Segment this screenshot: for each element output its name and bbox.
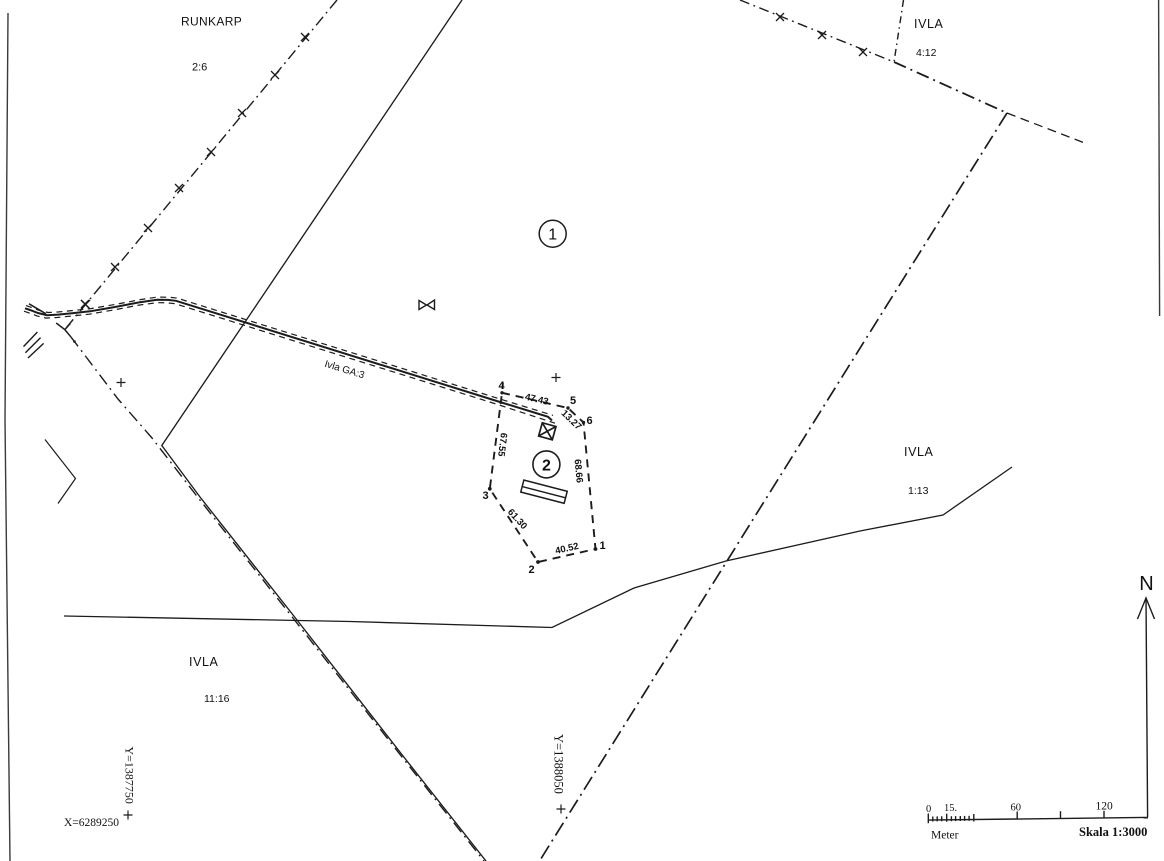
svg-text:RUNKARP: RUNKARP (181, 15, 242, 29)
svg-text:1: 1 (600, 540, 606, 552)
svg-text:IVLA: IVLA (904, 445, 934, 459)
svg-text:3: 3 (483, 490, 489, 502)
svg-text:Y=1387750: Y=1387750 (123, 747, 137, 804)
svg-text:0: 0 (926, 804, 931, 815)
svg-text:Y=1388050: Y=1388050 (552, 734, 566, 794)
svg-text:2: 2 (542, 458, 551, 475)
svg-text:N: N (1139, 573, 1153, 595)
svg-text:Skala 1:3000: Skala 1:3000 (1079, 825, 1147, 839)
svg-text:IVLA: IVLA (189, 655, 219, 669)
svg-text:1: 1 (548, 227, 557, 244)
svg-text:15.: 15. (944, 803, 957, 814)
svg-text:IVLA: IVLA (914, 17, 944, 31)
svg-text:4: 4 (499, 380, 506, 392)
svg-text:1:13: 1:13 (908, 485, 929, 497)
svg-text:X=6289250: X=6289250 (64, 817, 119, 829)
svg-text:11:16: 11:16 (204, 693, 230, 705)
svg-text:4:12: 4:12 (916, 47, 937, 59)
svg-text:6: 6 (587, 415, 593, 427)
svg-text:2:6: 2:6 (192, 62, 207, 74)
svg-text:2: 2 (529, 564, 535, 576)
svg-text:Meter: Meter (931, 830, 959, 842)
svg-text:120: 120 (1096, 801, 1114, 813)
svg-text:60: 60 (1011, 803, 1022, 814)
svg-text:5: 5 (570, 395, 576, 407)
svg-text:68.66: 68.66 (572, 459, 585, 484)
